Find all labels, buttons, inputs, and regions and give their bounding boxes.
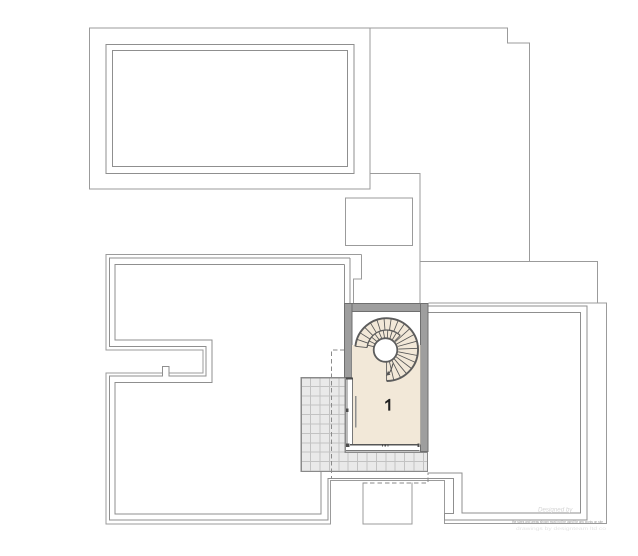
svg-text:drawings by designteam ltd co: drawings by designteam ltd co [516,526,607,531]
svg-text:the sizes and areas shown must: the sizes and areas shown must not be us… [512,520,603,524]
svg-text:Designed by: Designed by [538,507,573,514]
